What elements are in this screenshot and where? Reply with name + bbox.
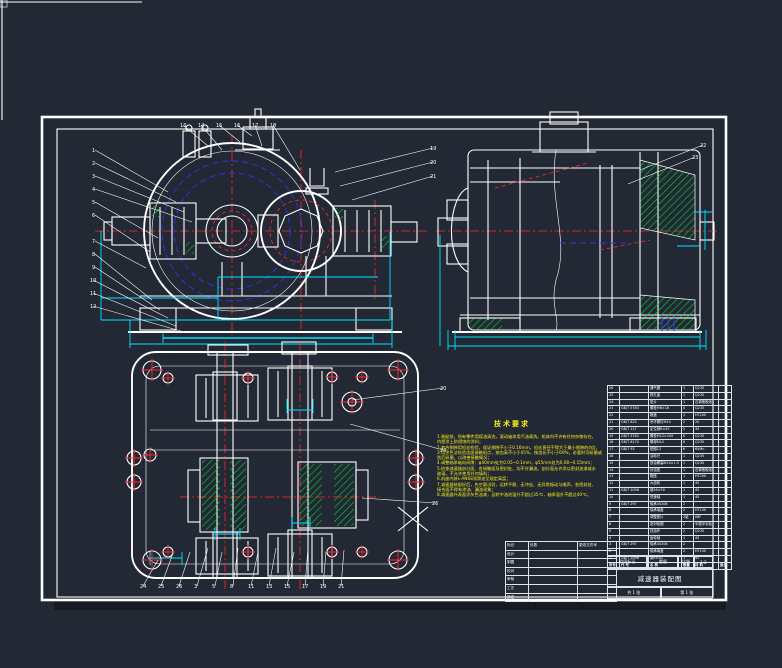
part-callout-number: 12: [90, 304, 96, 310]
bom-cell: 油标尺: [649, 453, 682, 460]
leader-line: [93, 280, 168, 318]
leader-line: [143, 560, 158, 586]
bom-cell: 视孔盖: [649, 392, 682, 399]
bom-row: 3GB/T 297轴承302062: [608, 542, 732, 549]
leader-line: [335, 148, 433, 172]
bom-cell: 2: [682, 528, 694, 535]
leader-line: [95, 215, 150, 252]
part-callout-number: 26: [432, 501, 438, 507]
bom-row: 2轴承端盖2HT150: [608, 549, 732, 556]
bom-cell: 轴承30206: [649, 542, 682, 549]
leader-line: [179, 552, 190, 586]
bom-cell: 16: [608, 453, 620, 460]
bom-cell: [719, 508, 732, 515]
bom-cell: 2: [682, 501, 694, 508]
bom-table: 26通气器1Q23525视孔盖1Q23524垫片1石棉橡胶纸23GB/T 578…: [607, 385, 732, 570]
bom-cell: 65Mn: [694, 447, 719, 454]
part-callout-number: 8: [230, 584, 233, 590]
bom-cell: [719, 440, 732, 447]
bom-cell: [620, 508, 649, 515]
leader-line: [352, 388, 443, 400]
bom-cell: 半粗羊毛毡: [694, 521, 719, 528]
drawing-title: 减速器装配图: [607, 568, 713, 587]
part-callout-number: 8: [92, 252, 95, 258]
part-callout-number: 18: [270, 123, 276, 129]
technical-requirements-line: 8.减速器外表面涂灰色油漆，运转中油池温升不超过35℃，轴承温升不超过40℃。: [437, 492, 609, 497]
bom-cell: [719, 555, 732, 562]
bom-cell: 8: [608, 508, 620, 515]
bom-cell: [719, 521, 732, 528]
bom-cell: [719, 392, 732, 399]
bom-row: 22箱盖1HT200: [608, 413, 732, 420]
part-callout-number: 3: [92, 174, 95, 180]
bom-cell: [620, 474, 649, 481]
bom-cell: 08F: [694, 515, 719, 522]
bom-cell: [719, 453, 732, 460]
bom-cell: Q235: [694, 433, 719, 440]
title-block-cell: [529, 559, 578, 568]
bom-cell: Q235: [694, 406, 719, 413]
bom-row: 5挡油环2Q235: [608, 528, 732, 535]
bom-cell: 17: [608, 447, 620, 454]
bom-row: 17GB/T 93垫圈12665Mn: [608, 447, 732, 454]
bom-cell: 1: [682, 474, 694, 481]
part-callout-number: 13: [266, 584, 272, 590]
bom-cell: 石棉橡胶纸: [694, 399, 719, 406]
bom-cell: 24: [608, 399, 620, 406]
bom-cell: 10: [608, 494, 620, 501]
part-callout-number: 7: [92, 239, 95, 245]
bom-cell: [620, 549, 649, 556]
bom-cell: 26: [608, 386, 620, 393]
bom-cell: 1: [682, 399, 694, 406]
bom-cell: 垫圈12: [649, 447, 682, 454]
bom-cell: [620, 535, 649, 542]
part-callout-number: 2: [92, 161, 95, 167]
bom-cell: [719, 487, 732, 494]
title-block-cell: 处数: [529, 542, 578, 551]
title-block-cell: [529, 550, 578, 559]
crosshair-cursor: [0, 0, 142, 120]
title-block-cell: 校对: [506, 567, 529, 576]
bom-cell: [719, 528, 732, 535]
bom-cell: HT200: [694, 474, 719, 481]
bom-row: 25视孔盖1Q235: [608, 392, 732, 399]
bom-cell: 6: [682, 447, 694, 454]
bom-cell: 1: [682, 453, 694, 460]
scale-value: 1:2: [694, 556, 713, 568]
bolt-holes: [125, 359, 425, 571]
title-block-cell: 设计: [506, 550, 529, 559]
part-callout-number: 3: [194, 584, 197, 590]
bom-cell: [719, 413, 732, 420]
bom-cell: 垫片: [649, 399, 682, 406]
bom-row: 16油标尺1Q235: [608, 453, 732, 460]
title-block-cell: [529, 576, 578, 585]
part-callout-number: 21: [430, 174, 436, 180]
part-callout-number: 13: [180, 123, 186, 129]
leader-line: [251, 552, 258, 586]
bom-row: 4齿轮轴145: [608, 535, 732, 542]
bom-cell: [719, 426, 732, 433]
bom-cell: [719, 419, 732, 426]
bom-cell: 25: [608, 392, 620, 399]
bom-cell: 调整垫片: [649, 515, 682, 522]
bom-cell: 螺母M12: [649, 440, 682, 447]
title-block-cell: [529, 593, 578, 602]
bom-cell: [620, 467, 649, 474]
bom-cell: 键16×50: [649, 487, 682, 494]
bom-cell: HT150: [694, 549, 719, 556]
part-callout-number: 20: [430, 160, 436, 166]
bom-row: 8轴承端盖2HT150: [608, 508, 732, 515]
leader-line: [341, 550, 344, 586]
bom-cell: [719, 542, 732, 549]
part-callout-number: 10: [90, 278, 96, 284]
bom-row: 6密封毡圈2半粗羊毛毡: [608, 521, 732, 528]
leader-line: [273, 125, 300, 170]
bom-cell: 18: [608, 440, 620, 447]
part-callout-number: 4: [92, 187, 95, 193]
leader-line: [362, 498, 435, 503]
leader-line: [95, 254, 152, 300]
bom-row: 15放油螺塞M14×1.51Q235: [608, 460, 732, 467]
cad-canvas[interactable]: 1234567891011121314151617181920212223242…: [0, 0, 782, 668]
part-callout-number: 5: [212, 584, 215, 590]
leader-line: [215, 552, 222, 586]
part-callout-number: 11: [248, 584, 254, 590]
bom-cell: 6: [682, 440, 694, 447]
title-block-signatures: 标记处数更改文件号设计制图校对审核工艺批准: [505, 541, 617, 602]
part-callout-number: 21: [338, 584, 344, 590]
stage-label: 阶段标记: [607, 556, 647, 568]
part-callout-number: 16: [234, 123, 240, 129]
bom-cell: 2: [682, 542, 694, 549]
bom-row: 10低速轴145: [608, 494, 732, 501]
bom-cell: 5: [608, 528, 620, 535]
technical-requirements-title: 技术要求: [477, 419, 547, 429]
part-callout-number: 19: [320, 584, 326, 590]
plan-view: [132, 333, 428, 592]
bom-cell: GB/T 117: [620, 426, 649, 433]
bom-cell: 20: [608, 426, 620, 433]
scale-label: 比例: [678, 556, 693, 568]
part-callout-number: 17: [302, 584, 308, 590]
bom-cell: [620, 494, 649, 501]
technical-requirements: 技术要求 1.装配前，所有零件用煤油清洗，滚动轴承用汽油清洗，机体内不许有任何杂…: [437, 419, 609, 498]
bom-cell: GB/T 93: [620, 447, 649, 454]
bom-cell: 6: [608, 521, 620, 528]
bom-cell: 23: [608, 406, 620, 413]
title-block-cell: [529, 567, 578, 576]
bom-cell: GB/T 297: [620, 542, 649, 549]
bom-row: 23GB/T 5783螺栓M6×164Q235: [608, 406, 732, 413]
bom-row: 26通气器1Q235: [608, 386, 732, 393]
bom-cell: 1: [682, 535, 694, 542]
bom-cell: GB/T 297: [620, 501, 649, 508]
bom-cell: 封油垫: [649, 467, 682, 474]
leader-line: [161, 556, 172, 586]
bom-cell: GB/T 825: [620, 419, 649, 426]
bom-cell: 4: [682, 406, 694, 413]
bom-cell: 轴承端盖: [649, 549, 682, 556]
part-callout-number: 25: [158, 584, 164, 590]
bom-cell: 45: [694, 535, 719, 542]
bom-cell: 放油螺塞M14×1.5: [649, 460, 682, 467]
bom-cell: 轴承端盖: [649, 508, 682, 515]
bom-cell: [719, 474, 732, 481]
title-block-cell: 更改文件号: [578, 542, 617, 551]
bom-cell: 2: [682, 521, 694, 528]
title-block-cell: 批准: [506, 593, 529, 602]
bom-cell: 21: [608, 419, 620, 426]
bom-row: 11GB/T 1096键16×50145: [608, 487, 732, 494]
bom-cell: 螺栓M6×16: [649, 406, 682, 413]
leader-line: [93, 306, 184, 332]
title-block-main: 阶段标记 重量 比例 1:2 减速器装配图 共 1 张 第 1 张: [607, 556, 713, 598]
bom-cell: 2: [682, 419, 694, 426]
bom-row: 12大齿轮145: [608, 481, 732, 488]
bom-cell: 22: [608, 413, 620, 420]
bom-cell: 低速轴: [649, 494, 682, 501]
bom-cell: GB/T 5782: [620, 433, 649, 440]
bom-cell: 1: [682, 481, 694, 488]
sheet-shadow: [54, 601, 726, 610]
weight-label: 重量: [647, 556, 678, 568]
leader-line: [95, 267, 160, 310]
bom-cell: 11: [608, 487, 620, 494]
bom-cell: 螺栓M12×100: [649, 433, 682, 440]
bom-cell: 吊环螺钉M10: [649, 419, 682, 426]
bom-cell: 45: [694, 481, 719, 488]
part-callout-number: 20: [440, 386, 446, 392]
bom-cell: 2: [682, 549, 694, 556]
bom-row: 9GB/T 297轴承302082: [608, 501, 732, 508]
leader-line: [95, 163, 176, 202]
bom-cell: [719, 535, 732, 542]
bom-cell: [620, 392, 649, 399]
bom-cell: 石棉橡胶纸: [694, 467, 719, 474]
part-callout-number: 17: [252, 123, 258, 129]
bom-cell: Q235: [694, 386, 719, 393]
bom-row: 13箱座1HT200: [608, 474, 732, 481]
part-callout-number: 19: [430, 146, 436, 152]
bom-cell: 箱座: [649, 474, 682, 481]
technical-requirements-body: 1.装配前，所有零件用煤油清洗，滚动轴承用汽油清洗，机体内不许有任何杂物存在， …: [437, 434, 609, 498]
part-callout-number: 24: [140, 584, 146, 590]
part-callout-number: 5: [92, 200, 95, 206]
part-callout-number: 15: [216, 123, 222, 129]
side-view: [436, 112, 720, 350]
part-callout-number: 23: [692, 155, 698, 161]
bom-cell: [694, 542, 719, 549]
part-callout-number: 11: [90, 291, 96, 297]
sheet-total: 共 1 张: [607, 587, 661, 599]
bom-cell: [620, 399, 649, 406]
part-callout-number: 14: [198, 123, 204, 129]
bom-cell: 19: [608, 433, 620, 440]
leader-line: [95, 176, 184, 212]
bom-cell: 齿轮轴: [649, 535, 682, 542]
bom-cell: 14: [608, 467, 620, 474]
bom-cell: 1: [682, 392, 694, 399]
bom-cell: [620, 453, 649, 460]
title-block-cell: 工艺: [506, 584, 529, 593]
title-block-cell: 标记: [506, 542, 529, 551]
bom-cell: 2组: [682, 515, 694, 522]
bom-cell: [719, 494, 732, 501]
bom-cell: 箱盖: [649, 413, 682, 420]
bom-cell: 1: [682, 467, 694, 474]
bom-row: 20GB/T 117定位销8×35235: [608, 426, 732, 433]
bom-row: 21GB/T 825吊环螺钉M10220: [608, 419, 732, 426]
title-block-cell: 审核: [506, 576, 529, 585]
bom-cell: [620, 481, 649, 488]
part-callout-number: 22: [700, 143, 706, 149]
bom-row: 14封油垫1石棉橡胶纸: [608, 467, 732, 474]
bom-cell: [620, 460, 649, 467]
bom-cell: [620, 528, 649, 535]
bom-cell: [719, 447, 732, 454]
bom-cell: 20: [694, 419, 719, 426]
bom-cell: Q235: [694, 460, 719, 467]
bom-header-cell: 备注: [719, 562, 732, 569]
part-callout-number: 9: [92, 265, 95, 271]
bom-cell: 1: [682, 460, 694, 467]
leader-line: [340, 162, 433, 186]
bom-cell: [719, 460, 732, 467]
part-callout-number: 6: [92, 213, 95, 219]
bom-cell: [719, 386, 732, 393]
bom-cell: 45: [694, 487, 719, 494]
bom-cell: 35: [694, 426, 719, 433]
bom-cell: HT200: [694, 413, 719, 420]
bom-cell: [719, 515, 732, 522]
bom-cell: 2: [682, 426, 694, 433]
bom-cell: 9: [608, 501, 620, 508]
bom-cell: Q235: [694, 440, 719, 447]
bom-cell: [719, 549, 732, 556]
bom-cell: 大齿轮: [649, 481, 682, 488]
bom-cell: 挡油环: [649, 528, 682, 535]
bom-row: 19GB/T 5782螺栓M12×1006Q235: [608, 433, 732, 440]
bom-cell: [719, 501, 732, 508]
bom-cell: 1: [682, 386, 694, 393]
bom-cell: [719, 406, 732, 413]
bom-cell: Q235: [694, 453, 719, 460]
title-block-cell: [529, 584, 578, 593]
bom-cell: GB/T 5783: [620, 406, 649, 413]
bom-cell: 7: [608, 515, 620, 522]
bom-row: 18GB/T 6170螺母M126Q235: [608, 440, 732, 447]
bom-cell: 13: [608, 474, 620, 481]
bom-cell: [620, 515, 649, 522]
bom-cell: [620, 413, 649, 420]
bom-row: 7调整垫片2组08F: [608, 515, 732, 522]
bom-cell: [620, 521, 649, 528]
bom-cell: [620, 386, 649, 393]
leader-line: [269, 548, 276, 586]
bom-cell: 1: [682, 487, 694, 494]
bom-cell: 1: [682, 494, 694, 501]
bom-cell: 15: [608, 460, 620, 467]
bom-cell: 定位销8×35: [649, 426, 682, 433]
bom-cell: Q235: [694, 392, 719, 399]
sheet-number: 第 1 张: [661, 587, 714, 599]
bom-cell: [719, 399, 732, 406]
bom-cell: 6: [682, 433, 694, 440]
part-callout-number: 1: [92, 148, 95, 154]
bom-cell: Q235: [694, 528, 719, 535]
bom-cell: [694, 501, 719, 508]
bom-cell: [719, 433, 732, 440]
title-block-cell: 制图: [506, 559, 529, 568]
leader-line: [95, 150, 168, 192]
bom-cell: 密封毡圈: [649, 521, 682, 528]
bom-cell: 12: [608, 481, 620, 488]
part-callout-number: 26: [176, 584, 182, 590]
bom-cell: 1: [682, 413, 694, 420]
technical-requirements-line: 4.调整轴承轴向间隙：φ40mm处为0.05~0.1mm，φ55mm处为0.08…: [437, 460, 609, 465]
bom-cell: HT150: [694, 508, 719, 515]
bom-row: 24垫片1石棉橡胶纸: [608, 399, 732, 406]
leader-line: [350, 424, 443, 450]
part-callout-number: 15: [284, 584, 290, 590]
bom-cell: 2: [682, 508, 694, 515]
bom-cell: [719, 481, 732, 488]
bom-cell: 通气器: [649, 386, 682, 393]
bom-cell: GB/T 1096: [620, 487, 649, 494]
bom-cell: GB/T 6170: [620, 440, 649, 447]
bom-cell: [719, 467, 732, 474]
leader-line: [323, 552, 326, 586]
bom-cell: 轴承30208: [649, 501, 682, 508]
bom-cell: 45: [694, 494, 719, 501]
